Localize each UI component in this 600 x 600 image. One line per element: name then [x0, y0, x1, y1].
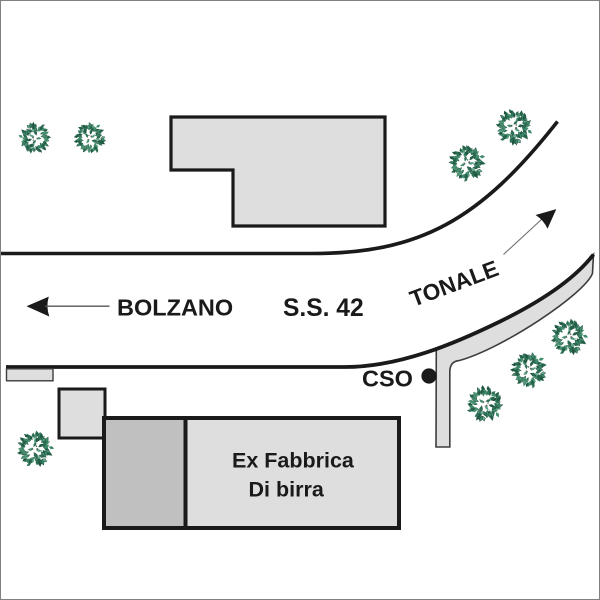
svg-text:S.S. 42: S.S. 42: [283, 295, 364, 322]
svg-text:CSO: CSO: [362, 366, 413, 392]
svg-text:Di birra: Di birra: [249, 478, 325, 502]
svg-text:BOLZANO: BOLZANO: [117, 295, 233, 321]
svg-text:Ex Fabbrica: Ex Fabbrica: [232, 449, 355, 473]
